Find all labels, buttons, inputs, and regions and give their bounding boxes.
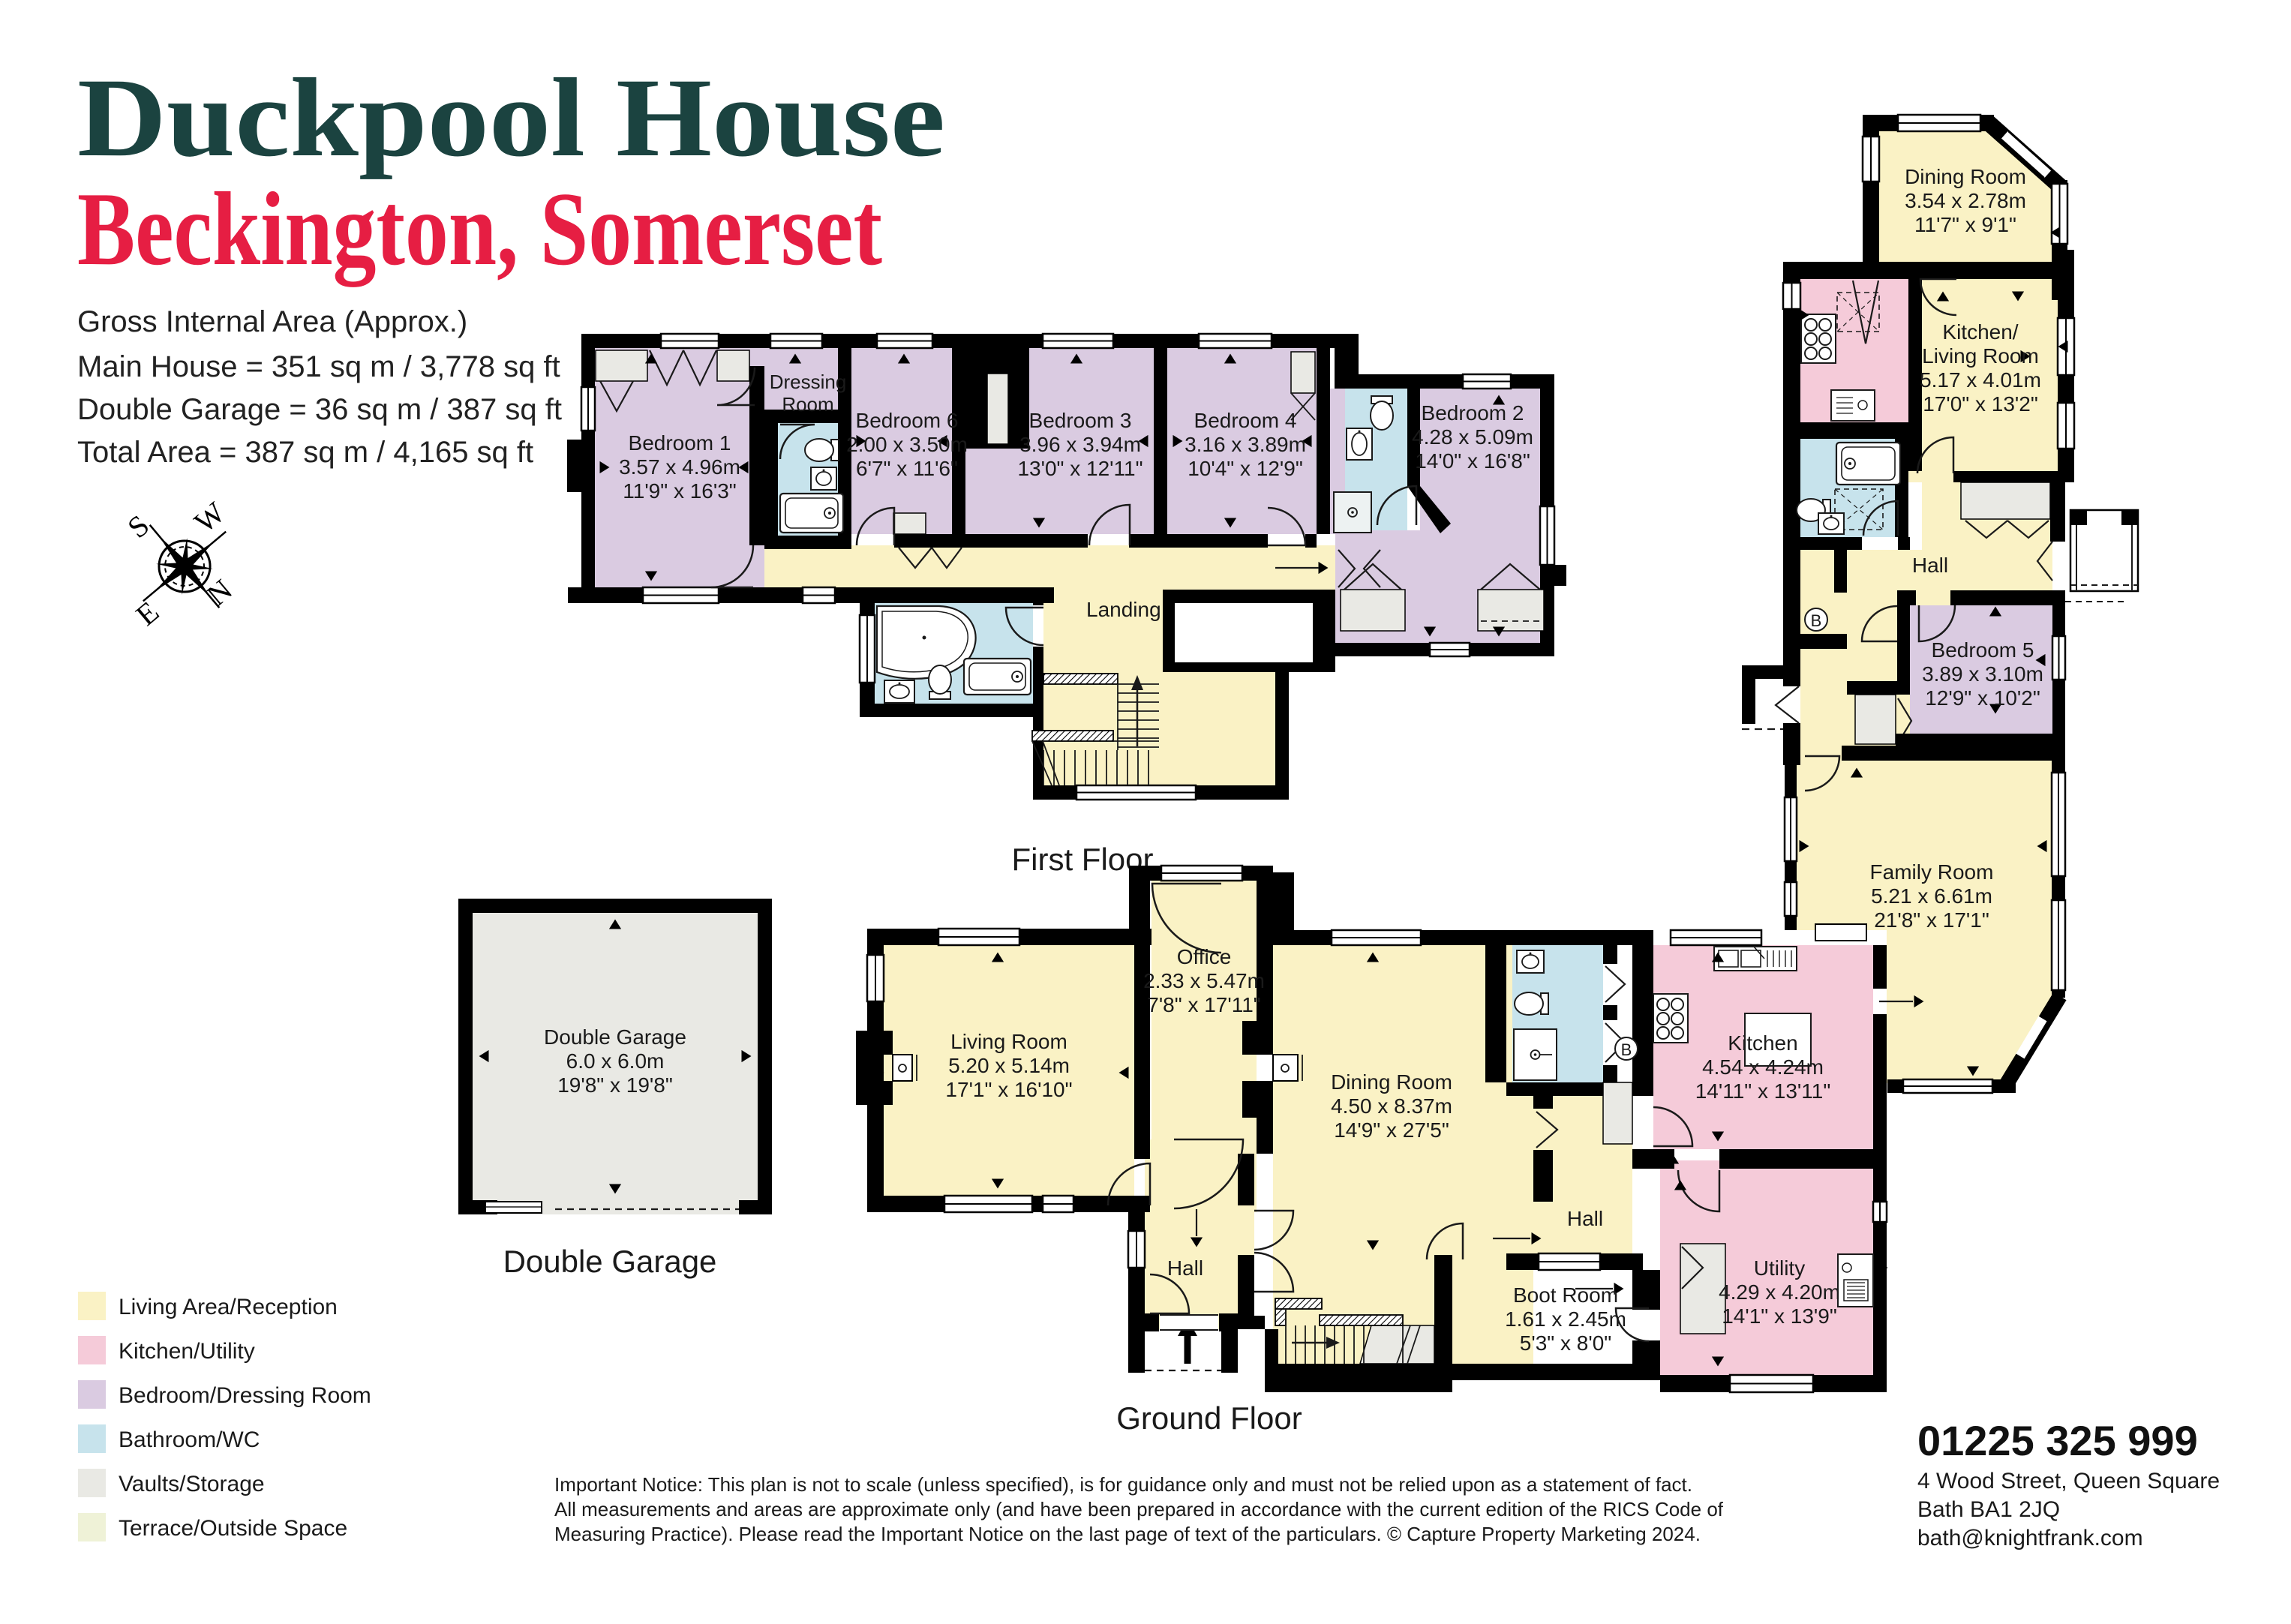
svg-text:12'9" x 10'2": 12'9" x 10'2" (1925, 686, 2040, 710)
svg-text:All measurements and areas are: All measurements and areas are approxima… (554, 1498, 1724, 1520)
svg-text:14'11" x 13'11": 14'11" x 13'11" (1695, 1079, 1831, 1103)
svg-text:Living Room: Living Room (950, 1030, 1067, 1053)
svg-text:B: B (1811, 611, 1822, 630)
svg-text:19'8" x 19'8": 19'8" x 19'8" (557, 1073, 673, 1097)
svg-text:Living Area/Reception: Living Area/Reception (119, 1295, 338, 1319)
svg-text:11'9" x 16'3": 11'9" x 16'3" (623, 479, 736, 503)
svg-text:Bedroom 5: Bedroom 5 (1932, 638, 2034, 662)
svg-text:4.54 x 4.24m: 4.54 x 4.24m (1702, 1055, 1824, 1079)
svg-text:3.16 x 3.89m: 3.16 x 3.89m (1185, 433, 1306, 456)
svg-text:3.54 x 2.78m: 3.54 x 2.78m (1905, 189, 2026, 212)
svg-text:2.33 x 5.47m: 2.33 x 5.47m (1143, 969, 1265, 992)
svg-text:Bath BA1 2JQ: Bath BA1 2JQ (1917, 1497, 2060, 1522)
svg-text:Room: Room (782, 393, 833, 416)
svg-text:Bedroom 6: Bedroom 6 (856, 409, 959, 432)
svg-text:11'7" x 9'1": 11'7" x 9'1" (1914, 213, 2016, 236)
svg-text:5.17 x 4.01m: 5.17 x 4.01m (1920, 368, 2041, 392)
svg-text:Bedroom/Dressing Room: Bedroom/Dressing Room (119, 1383, 371, 1408)
svg-text:21'8" x 17'1": 21'8" x 17'1" (1874, 908, 1989, 932)
svg-text:Bedroom 4: Bedroom 4 (1194, 409, 1297, 432)
svg-text:17'1" x 16'10": 17'1" x 16'10" (945, 1078, 1072, 1101)
svg-text:Dressing: Dressing (770, 371, 847, 393)
svg-text:Bedroom 1: Bedroom 1 (629, 431, 731, 455)
svg-text:Hall: Hall (1567, 1207, 1603, 1230)
svg-text:Hall: Hall (1912, 554, 1948, 577)
svg-text:3.57 x 4.96m: 3.57 x 4.96m (619, 455, 740, 479)
svg-text:7'8" x 17'11": 7'8" x 17'11" (1147, 993, 1260, 1016)
svg-text:3.96 x 3.94m: 3.96 x 3.94m (1019, 433, 1141, 456)
svg-text:Kitchen/Utility: Kitchen/Utility (119, 1339, 255, 1364)
svg-text:2.00 x 3.50m: 2.00 x 3.50m (846, 433, 968, 456)
svg-text:14'9" x 27'5": 14'9" x 27'5" (1334, 1118, 1449, 1142)
svg-text:4.28 x 5.09m: 4.28 x 5.09m (1412, 425, 1533, 449)
svg-text:4.50 x 8.37m: 4.50 x 8.37m (1331, 1094, 1452, 1118)
svg-text:Dining Room: Dining Room (1331, 1070, 1452, 1094)
svg-text:5.21 x 6.61m: 5.21 x 6.61m (1871, 884, 1992, 908)
svg-text:Dining Room: Dining Room (1905, 165, 2026, 188)
svg-text:Bedroom 3: Bedroom 3 (1029, 409, 1132, 432)
svg-text:B: B (1621, 1040, 1632, 1059)
svg-text:Double Garage: Double Garage (503, 1244, 717, 1279)
svg-text:Total Area = 387 sq m / 4,165: Total Area = 387 sq m / 4,165 sq ft (77, 436, 533, 469)
svg-text:Main House = 351 sq m / 3,778: Main House = 351 sq m / 3,778 sq ft (77, 350, 560, 383)
svg-text:5'3" x 8'0": 5'3" x 8'0" (1520, 1331, 1611, 1355)
svg-text:Kitchen/: Kitchen/ (1942, 320, 2018, 344)
svg-text:Ground Floor: Ground Floor (1116, 1400, 1302, 1436)
svg-text:14'0" x 16'8": 14'0" x 16'8" (1415, 449, 1530, 473)
svg-text:4.29 x 4.20m: 4.29 x 4.20m (1719, 1280, 1840, 1304)
svg-text:Living Room: Living Room (1922, 344, 2039, 368)
svg-text:1.61 x 2.45m: 1.61 x 2.45m (1505, 1307, 1626, 1331)
svg-text:Kitchen: Kitchen (1728, 1031, 1797, 1055)
svg-text:Vaults/Storage: Vaults/Storage (119, 1472, 265, 1496)
svg-text:13'0" x 12'11": 13'0" x 12'11" (1017, 457, 1142, 480)
svg-text:17'0" x 13'2": 17'0" x 13'2" (1923, 392, 2038, 416)
svg-text:Duckpool House: Duckpool House (77, 56, 945, 180)
svg-text:14'1" x 13'9": 14'1" x 13'9" (1722, 1304, 1837, 1328)
svg-text:Gross Internal Area (Approx.): Gross Internal Area (Approx.) (77, 305, 467, 338)
svg-text:6.0 x 6.0m: 6.0 x 6.0m (566, 1049, 665, 1073)
svg-text:5.20 x 5.14m: 5.20 x 5.14m (948, 1054, 1070, 1077)
svg-text:6'7" x 11'6": 6'7" x 11'6" (856, 457, 958, 480)
svg-text:4 Wood Street, Queen Square: 4 Wood Street, Queen Square (1917, 1469, 2220, 1493)
svg-text:Hall: Hall (1167, 1256, 1203, 1280)
svg-text:Office: Office (1177, 945, 1232, 968)
svg-text:10'4" x 12'9": 10'4" x 12'9" (1188, 457, 1303, 480)
svg-text:Bathroom/WC: Bathroom/WC (119, 1427, 260, 1452)
svg-text:Double Garage = 36 sq m / 387: Double Garage = 36 sq m / 387 sq ft (77, 393, 562, 426)
svg-text:Important Notice: This plan is: Important Notice: This plan is not to sc… (554, 1473, 1692, 1496)
svg-text:3.89 x 3.10m: 3.89 x 3.10m (1922, 662, 2043, 686)
svg-text:Terrace/Outside Space: Terrace/Outside Space (119, 1516, 347, 1541)
svg-text:Bedroom 2: Bedroom 2 (1422, 401, 1524, 425)
svg-text:Beckington, Somerset: Beckington, Somerset (77, 171, 882, 287)
svg-text:bath@knightfrank.com: bath@knightfrank.com (1917, 1526, 2143, 1550)
svg-text:Landing: Landing (1086, 598, 1161, 621)
svg-text:Utility: Utility (1754, 1256, 1805, 1280)
svg-text:Double Garage: Double Garage (544, 1025, 686, 1049)
svg-text:Family Room: Family Room (1870, 860, 1994, 884)
svg-text:Boot Room: Boot Room (1513, 1283, 1618, 1307)
svg-text:Measuring Practice). Please re: Measuring Practice). Please read the Imp… (554, 1523, 1701, 1545)
svg-text:01225 325 999: 01225 325 999 (1917, 1417, 2198, 1464)
